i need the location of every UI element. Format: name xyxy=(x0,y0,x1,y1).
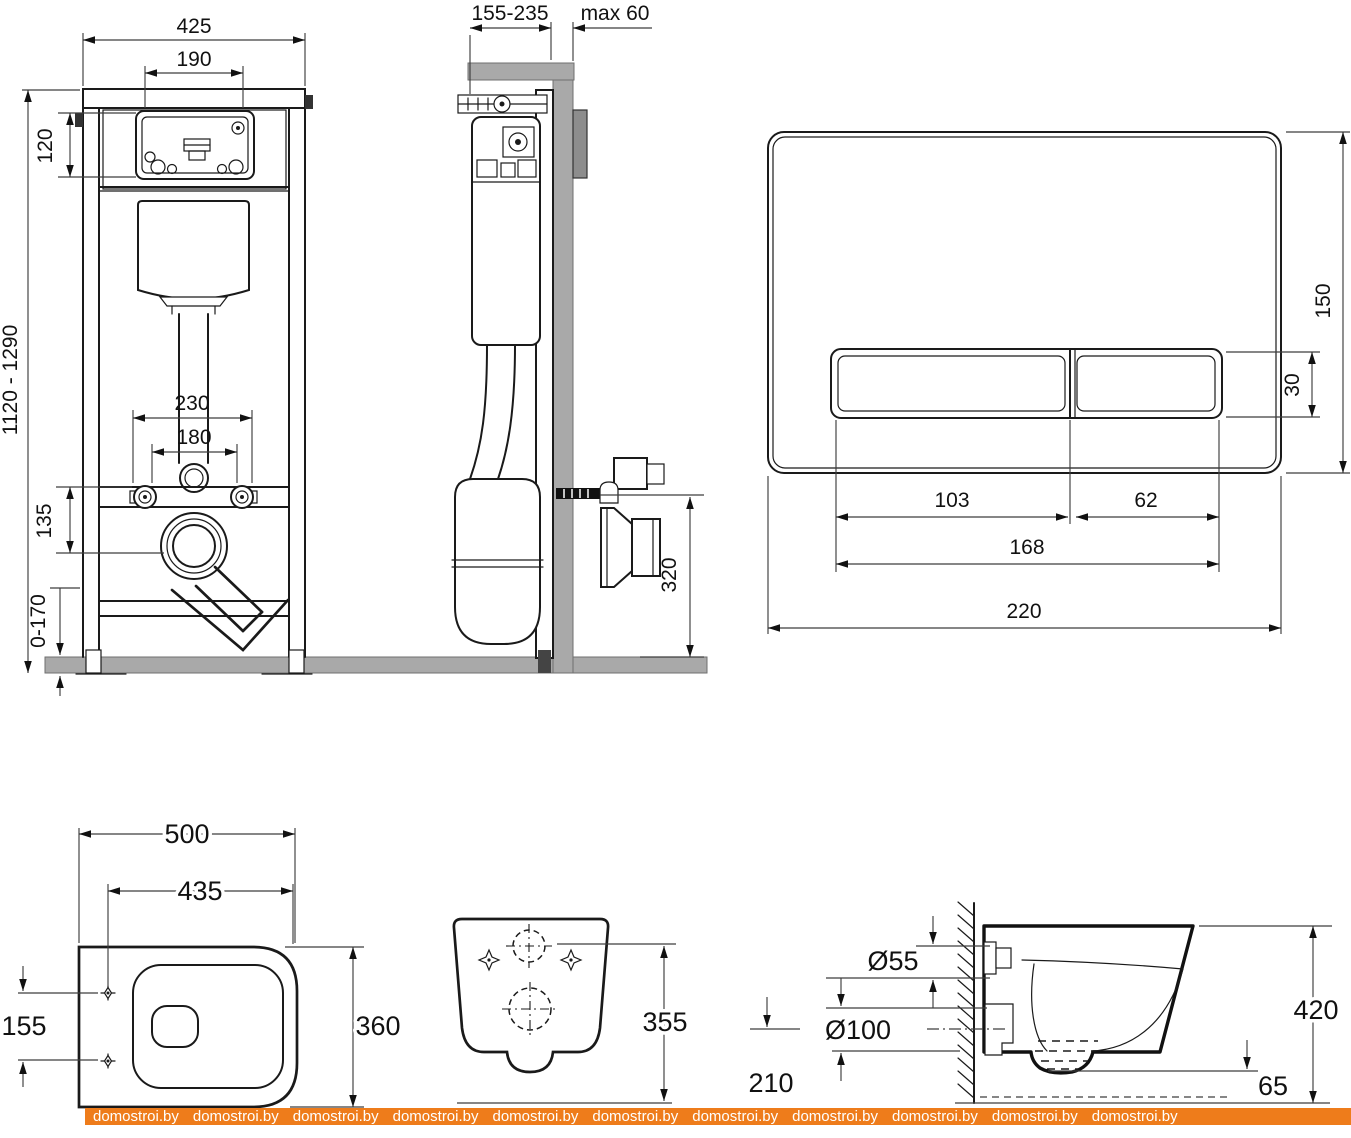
watermark-text: domostroi.by xyxy=(493,1108,579,1125)
mounting-stud-left xyxy=(130,486,156,508)
svg-text:150: 150 xyxy=(1312,283,1335,318)
floor-strip xyxy=(45,657,707,673)
svg-text:120: 120 xyxy=(34,128,57,163)
svg-text:168: 168 xyxy=(1009,536,1044,559)
watermark-text: domostroi.by xyxy=(792,1108,878,1125)
svg-text:190: 190 xyxy=(176,48,211,71)
bowl-top-view: 500 435 155 360 xyxy=(1,819,400,1107)
drain-connector-side xyxy=(601,508,660,587)
svg-text:210: 210 xyxy=(748,1068,793,1098)
watermark-text: domostroi.by xyxy=(93,1108,179,1125)
adjustable-bracket xyxy=(458,95,547,113)
watermark-text: domostroi.by xyxy=(592,1108,678,1125)
svg-text:425: 425 xyxy=(176,15,211,38)
svg-text:1120 - 1290: 1120 - 1290 xyxy=(0,325,22,436)
frame-foot-right xyxy=(289,650,304,673)
watermark-text: domostroi.by xyxy=(892,1108,978,1125)
svg-text:320: 320 xyxy=(658,557,681,592)
svg-text:30: 30 xyxy=(1281,373,1304,396)
watermark-text: domostroi.by xyxy=(992,1108,1078,1125)
flush-bend-and-trap xyxy=(452,345,543,644)
cistern-side xyxy=(472,117,540,345)
wall-bracket-tab-left xyxy=(75,113,83,127)
svg-text:103: 103 xyxy=(934,489,969,512)
watermark-text: domostroi.by xyxy=(293,1108,379,1125)
technical-drawing-page: 425 190 120 1120 - 1290 230 180 xyxy=(0,0,1351,1138)
svg-text:0-170: 0-170 xyxy=(27,594,50,648)
svg-text:420: 420 xyxy=(1293,995,1338,1025)
bowl-rear-view: 355 xyxy=(454,919,688,1103)
svg-text:230: 230 xyxy=(174,392,209,415)
dim-small-button-width: 62 xyxy=(1076,489,1219,517)
watermark-text: domostroi.by xyxy=(193,1108,279,1125)
svg-text:355: 355 xyxy=(642,1007,687,1037)
svg-text:155: 155 xyxy=(1,1011,46,1041)
top-rail xyxy=(468,63,574,80)
dim-bowl-width: 360 xyxy=(285,947,401,1107)
watermark-text: domostroi.by xyxy=(1092,1108,1178,1125)
drain-outlet-front xyxy=(161,513,262,631)
button-frame xyxy=(831,349,1222,418)
dim-flush-inlet: Ø55 xyxy=(826,916,990,1008)
svg-text:155-235: 155-235 xyxy=(471,2,548,25)
wall-stud xyxy=(553,80,573,673)
svg-text:360: 360 xyxy=(355,1011,400,1041)
cistern-access-opening xyxy=(136,111,254,179)
bowl-outline-rear xyxy=(454,919,608,1072)
dim-foot-adjustment: 0-170 xyxy=(27,588,80,696)
wall-bracket-tab-right xyxy=(305,95,313,109)
svg-text:435: 435 xyxy=(177,876,222,906)
wall-section xyxy=(958,902,974,1103)
watermark-text: domostroi.by xyxy=(393,1108,479,1125)
svg-text:max 60: max 60 xyxy=(581,2,650,25)
dim-outlet-axis-height: 210 xyxy=(748,997,800,1098)
svg-text:62: 62 xyxy=(1134,489,1157,512)
flush-plate-body xyxy=(768,132,1281,473)
svg-text:Ø55: Ø55 xyxy=(867,946,918,976)
dim-large-button-width: 103 xyxy=(836,489,1068,517)
bowl-side-view: Ø55 Ø100 210 420 65 xyxy=(748,902,1338,1103)
dim-finish-wall-max: max 60 xyxy=(573,2,652,61)
frame-side-view: 155-235 max 60 320 xyxy=(452,2,704,673)
watermark-text: domostroi.by xyxy=(692,1108,778,1125)
dim-buttons-total-width: 168 xyxy=(836,536,1219,564)
bowl-outline-side xyxy=(984,926,1193,1073)
installation-diagram: 425 190 120 1120 - 1290 230 180 xyxy=(0,0,1351,1138)
dim-waste-outlet: Ø100 xyxy=(825,978,987,1081)
svg-text:Ø100: Ø100 xyxy=(825,1015,891,1045)
flush-plate-view: 150 30 103 62 168 220 xyxy=(768,132,1350,634)
frame-top-beam xyxy=(83,89,305,108)
dim-plate-width: 220 xyxy=(768,600,1281,628)
svg-text:220: 220 xyxy=(1006,600,1041,623)
frame-foot-left xyxy=(86,650,101,673)
bowl-outline-top xyxy=(79,947,297,1107)
svg-text:180: 180 xyxy=(176,426,211,449)
frame-foot-side xyxy=(538,650,551,673)
dim-opening-height: 120 xyxy=(34,113,136,177)
dim-plate-height: 150 xyxy=(1286,132,1350,473)
svg-text:135: 135 xyxy=(33,503,56,538)
wall-fixing-plate xyxy=(573,110,587,178)
mounting-stud-right xyxy=(231,486,257,508)
watermark-strip: domostroi.bydomostroi.bydomostroi.bydomo… xyxy=(85,1108,1351,1125)
svg-text:500: 500 xyxy=(164,819,209,849)
frame-front-view: 425 190 120 1120 - 1290 230 180 xyxy=(0,15,313,696)
svg-text:65: 65 xyxy=(1258,1071,1288,1101)
inlet-connector xyxy=(614,458,664,489)
